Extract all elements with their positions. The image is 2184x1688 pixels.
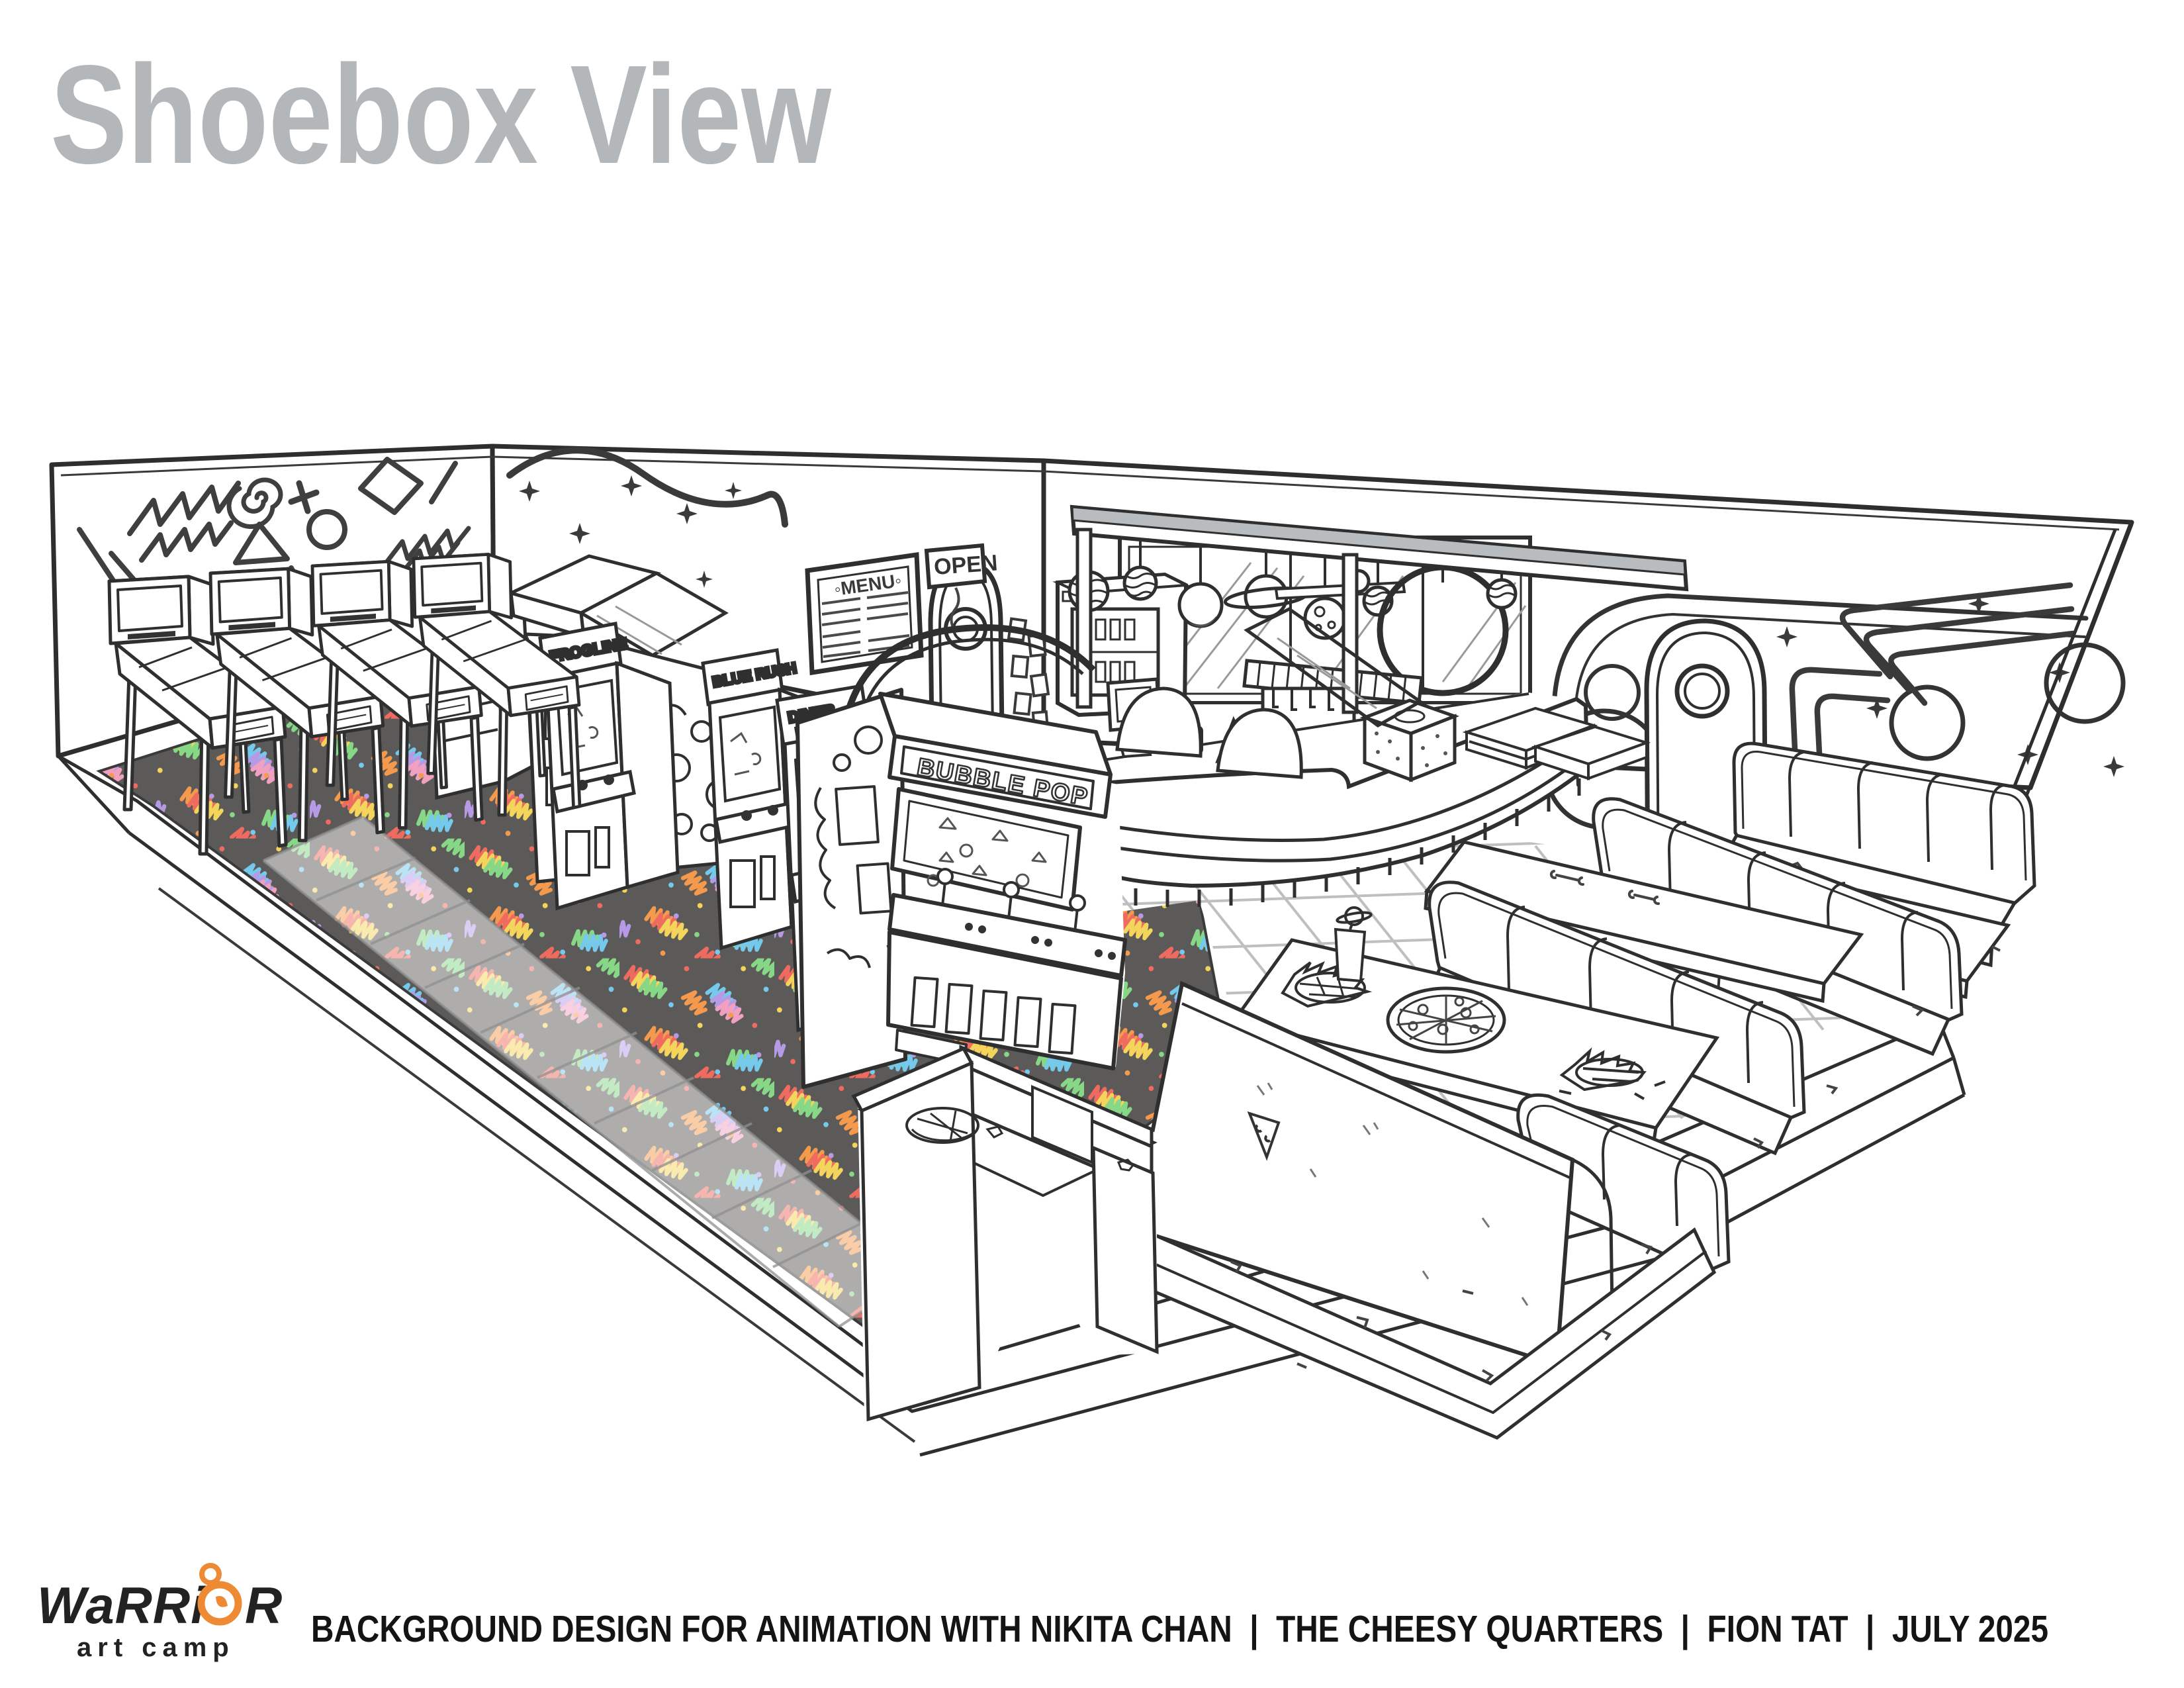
svg-text:art camp: art camp bbox=[77, 1633, 235, 1662]
svg-text:OPEN: OPEN bbox=[933, 550, 999, 580]
svg-text:R: R bbox=[245, 1576, 282, 1634]
svg-text:BACKGROUND DESIGN FOR ANIMATIO: BACKGROUND DESIGN FOR ANIMATION WITH NIK… bbox=[311, 1608, 2048, 1650]
svg-text:Shoebox View: Shoebox View bbox=[50, 36, 832, 193]
svg-text:WaRRi: WaRRi bbox=[37, 1576, 206, 1634]
